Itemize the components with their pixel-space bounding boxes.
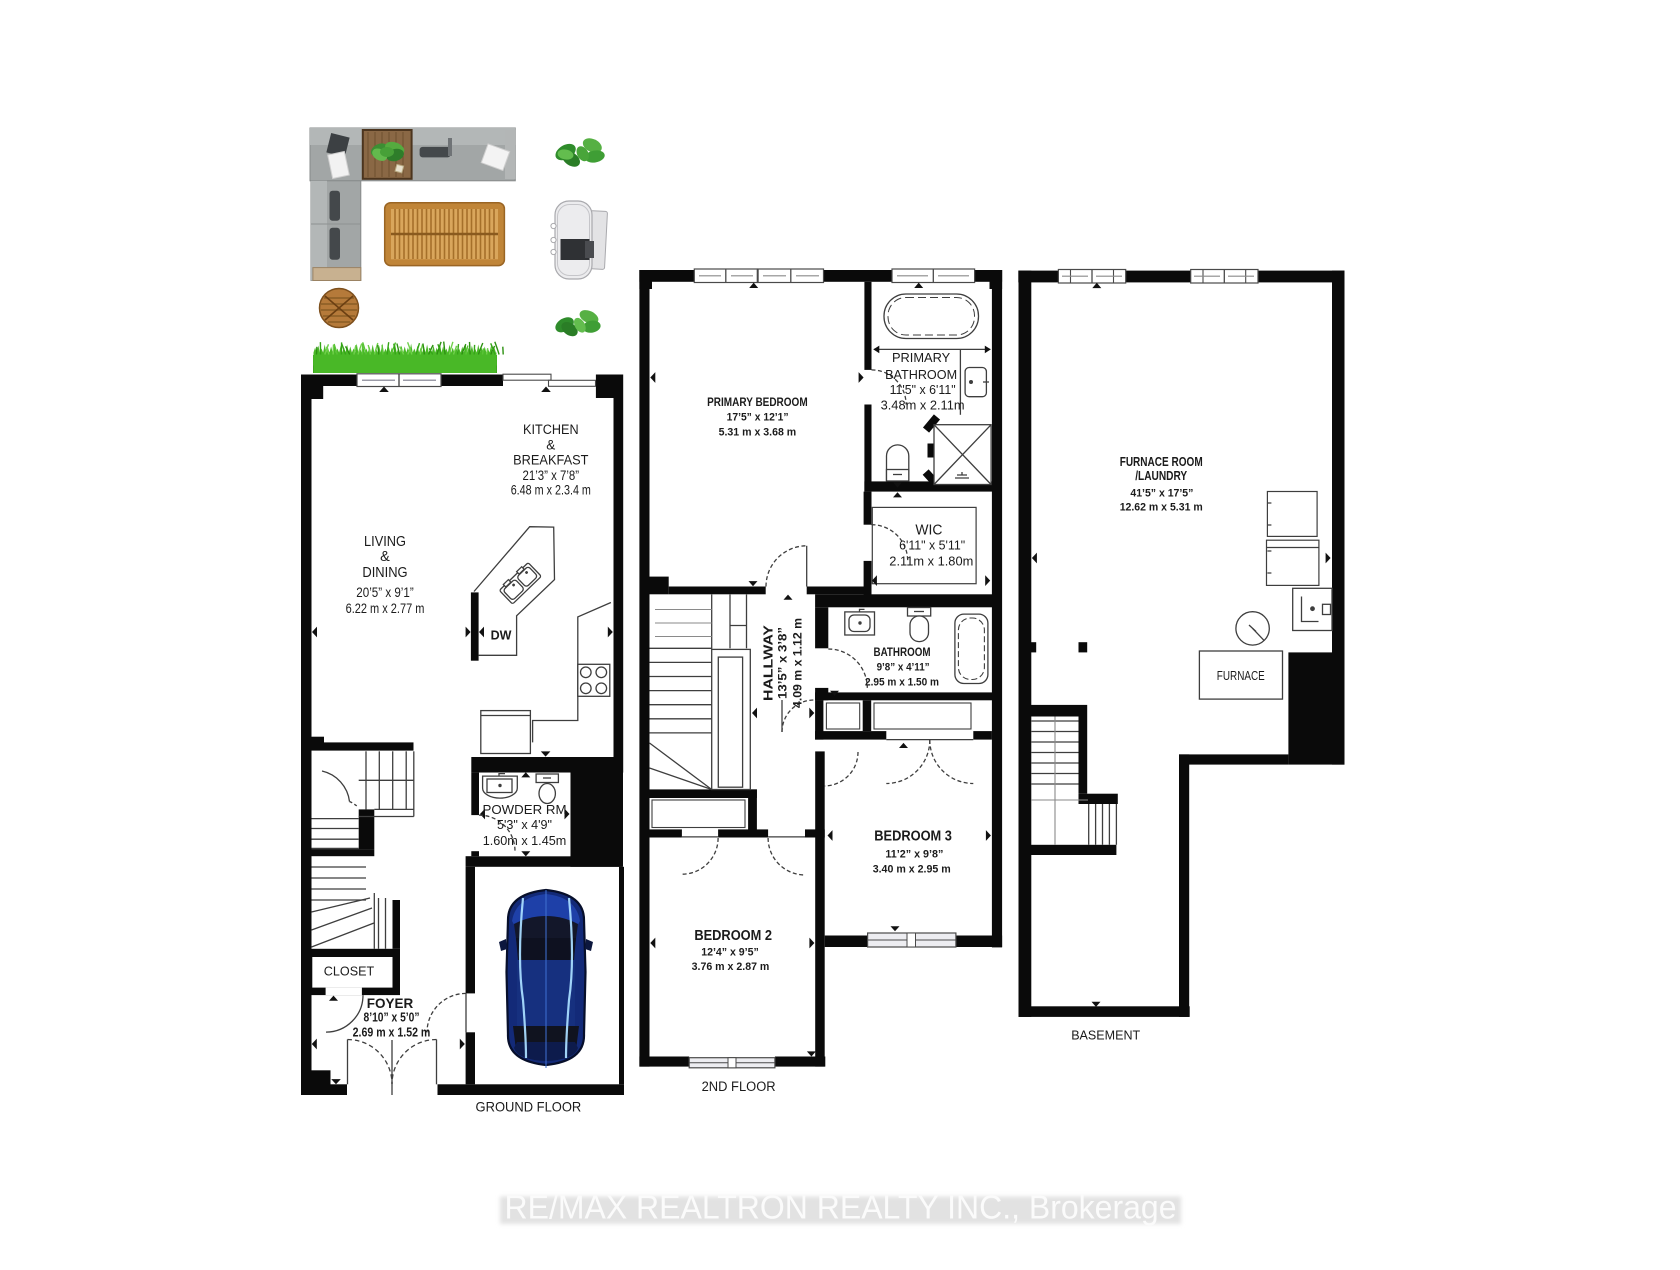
svg-text:9’8” x 4’11”: 9’8” x 4’11” [877,661,930,673]
svg-text:FOYER: FOYER [367,995,413,1011]
svg-text:DINING: DINING [362,565,407,581]
svg-text:5.31 m x 3.68 m: 5.31 m x 3.68 m [719,427,797,439]
svg-text:GROUND FLOOR: GROUND FLOOR [476,1098,582,1114]
svg-text:5'3" x 4'9": 5'3" x 4'9" [497,817,552,832]
svg-text:3.76 m x 2.87 m: 3.76 m x 2.87 m [692,961,770,973]
svg-text:3.40 m x 2.95 m: 3.40 m x 2.95 m [873,863,951,875]
svg-text:FURNACE ROOM: FURNACE ROOM [1120,454,1203,469]
svg-text:8’10” x 5’0”: 8’10” x 5’0” [364,1011,420,1025]
svg-text:&: & [546,437,555,452]
svg-text:2ND FLOOR: 2ND FLOOR [702,1079,776,1094]
svg-text:CLOSET: CLOSET [324,964,374,979]
svg-text:4.09 m x 1.12 m: 4.09 m x 1.12 m [793,618,805,708]
svg-text:20’5” x 9’1”: 20’5” x 9’1” [356,585,413,600]
svg-text:HALLWAY: HALLWAY [761,625,776,701]
svg-text:BREAKFAST: BREAKFAST [513,453,588,468]
svg-text:2.95 m x 1.50 m: 2.95 m x 1.50 m [865,677,939,689]
svg-text:6'11" x 5'11": 6'11" x 5'11" [899,538,965,553]
svg-text:2.69 m x 1.52 m: 2.69 m x 1.52 m [353,1025,431,1039]
svg-text:FURNACE: FURNACE [1217,668,1265,683]
svg-text:KITCHEN: KITCHEN [523,422,579,437]
svg-text:RE/MAX REALTRON REALTY INC., B: RE/MAX REALTRON REALTY INC., Brokerage [505,1189,1177,1226]
svg-text:21’3” x 7’8”: 21’3” x 7’8” [523,468,580,483]
svg-text:12.62 m x 5.31 m: 12.62 m x 5.31 m [1120,502,1203,514]
svg-text:BEDROOM 3: BEDROOM 3 [874,829,952,845]
svg-text:BEDROOM 2: BEDROOM 2 [694,928,772,944]
svg-text:2.11m x 1.80m: 2.11m x 1.80m [889,554,973,569]
svg-text:1.60m x 1.45m: 1.60m x 1.45m [483,833,567,848]
svg-text:6.48 m x 2.3.4 m: 6.48 m x 2.3.4 m [511,483,591,498]
svg-text:11’2” x 9’8”: 11’2” x 9’8” [885,849,943,861]
svg-text:/LAUNDRY: /LAUNDRY [1135,468,1187,483]
svg-text:41’5” x 17’5”: 41’5” x 17’5” [1130,488,1193,500]
svg-text:PRIMARY: PRIMARY [892,350,951,365]
svg-text:BASEMENT: BASEMENT [1071,1027,1140,1042]
svg-text:3.48m x 2.11m: 3.48m x 2.11m [881,398,965,413]
svg-text:POWDER RM: POWDER RM [483,802,567,817]
svg-text:DW: DW [491,629,512,643]
svg-text:LIVING: LIVING [364,534,406,550]
svg-text:BATHROOM: BATHROOM [874,645,931,659]
svg-text:PRIMARY BEDROOM: PRIMARY BEDROOM [707,396,808,409]
svg-text:17’5” x 12’1”: 17’5” x 12’1” [727,412,789,424]
svg-text:6.22 m x 2.77 m: 6.22 m x 2.77 m [346,601,425,616]
svg-text:13’5” x 3’8”: 13’5” x 3’8” [778,627,790,699]
svg-text:BATHROOM: BATHROOM [885,367,957,382]
svg-text:11'5" x 6'11": 11'5" x 6'11" [890,382,956,397]
svg-text:12’4” x 9’5”: 12’4” x 9’5” [701,947,759,959]
svg-text:&: & [380,549,390,565]
svg-text:WIC: WIC [915,523,942,539]
